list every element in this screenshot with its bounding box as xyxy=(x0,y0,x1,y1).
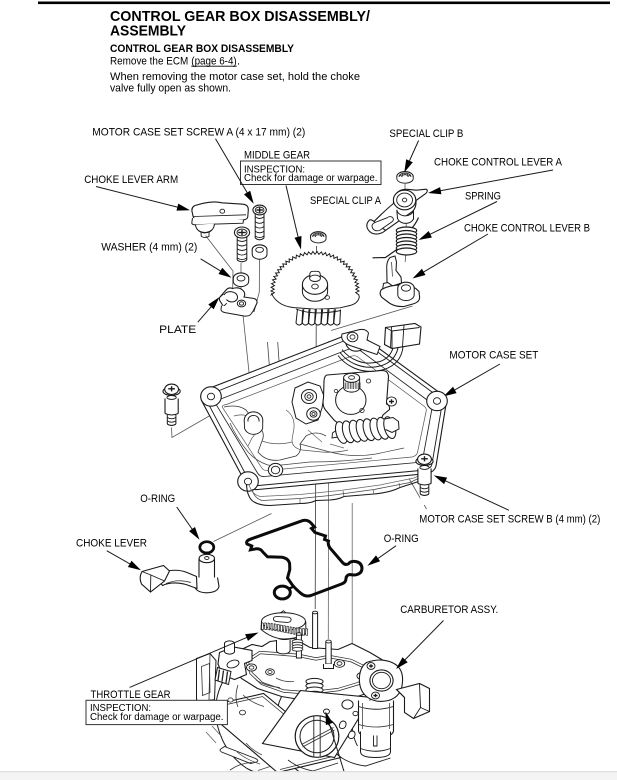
svg-text:MOTOR CASE SET: MOTOR CASE SET xyxy=(449,350,538,362)
svg-text:WASHER (4 mm) (2): WASHER (4 mm) (2) xyxy=(101,241,197,253)
svg-text:MOTOR CASE SET SCREW A (4 x 17: MOTOR CASE SET SCREW A (4 x 17 mm) (2) xyxy=(92,126,305,138)
svg-text:CHOKE CONTROL LEVER A: CHOKE CONTROL LEVER A xyxy=(434,157,563,169)
svg-text:CHOKE LEVER: CHOKE LEVER xyxy=(76,538,147,550)
svg-text:SPECIAL CLIP B: SPECIAL CLIP B xyxy=(389,128,463,140)
svg-text:When removing the motor case s: When removing the motor case set, hold t… xyxy=(110,71,360,83)
svg-text:CHOKE LEVER ARM: CHOKE LEVER ARM xyxy=(84,174,178,186)
svg-text:O-RING: O-RING xyxy=(140,493,175,505)
svg-text:valve fully open as shown.: valve fully open as shown. xyxy=(110,83,231,95)
svg-text:SPRING: SPRING xyxy=(465,190,501,202)
svg-text:PLATE: PLATE xyxy=(159,324,196,336)
svg-text:SPECIAL CLIP A: SPECIAL CLIP A xyxy=(310,195,382,207)
svg-text:MOTOR CASE SET SCREW B (4 mm): MOTOR CASE SET SCREW B (4 mm) (2) xyxy=(419,514,600,526)
svg-text:ASSEMBLY: ASSEMBLY xyxy=(110,22,186,39)
svg-text:MIDDLE GEAR: MIDDLE GEAR xyxy=(244,150,310,162)
svg-text:O-RING: O-RING xyxy=(384,533,419,545)
svg-text:Check for damage or warpage.: Check for damage or warpage. xyxy=(244,173,378,184)
svg-text:Check for damage or warpage.: Check for damage or warpage. xyxy=(90,712,224,723)
svg-text:THROTTLE GEAR: THROTTLE GEAR xyxy=(91,689,171,701)
svg-text:Remove the ECM (page 6-4).: Remove the ECM (page 6-4). xyxy=(110,55,240,67)
svg-text:CHOKE CONTROL LEVER B: CHOKE CONTROL LEVER B xyxy=(464,223,590,235)
svg-text:CONTROL GEAR BOX DISASSEMBLY: CONTROL GEAR BOX DISASSEMBLY xyxy=(110,43,295,55)
svg-text:CARBURETOR ASSY.: CARBURETOR ASSY. xyxy=(400,604,498,616)
